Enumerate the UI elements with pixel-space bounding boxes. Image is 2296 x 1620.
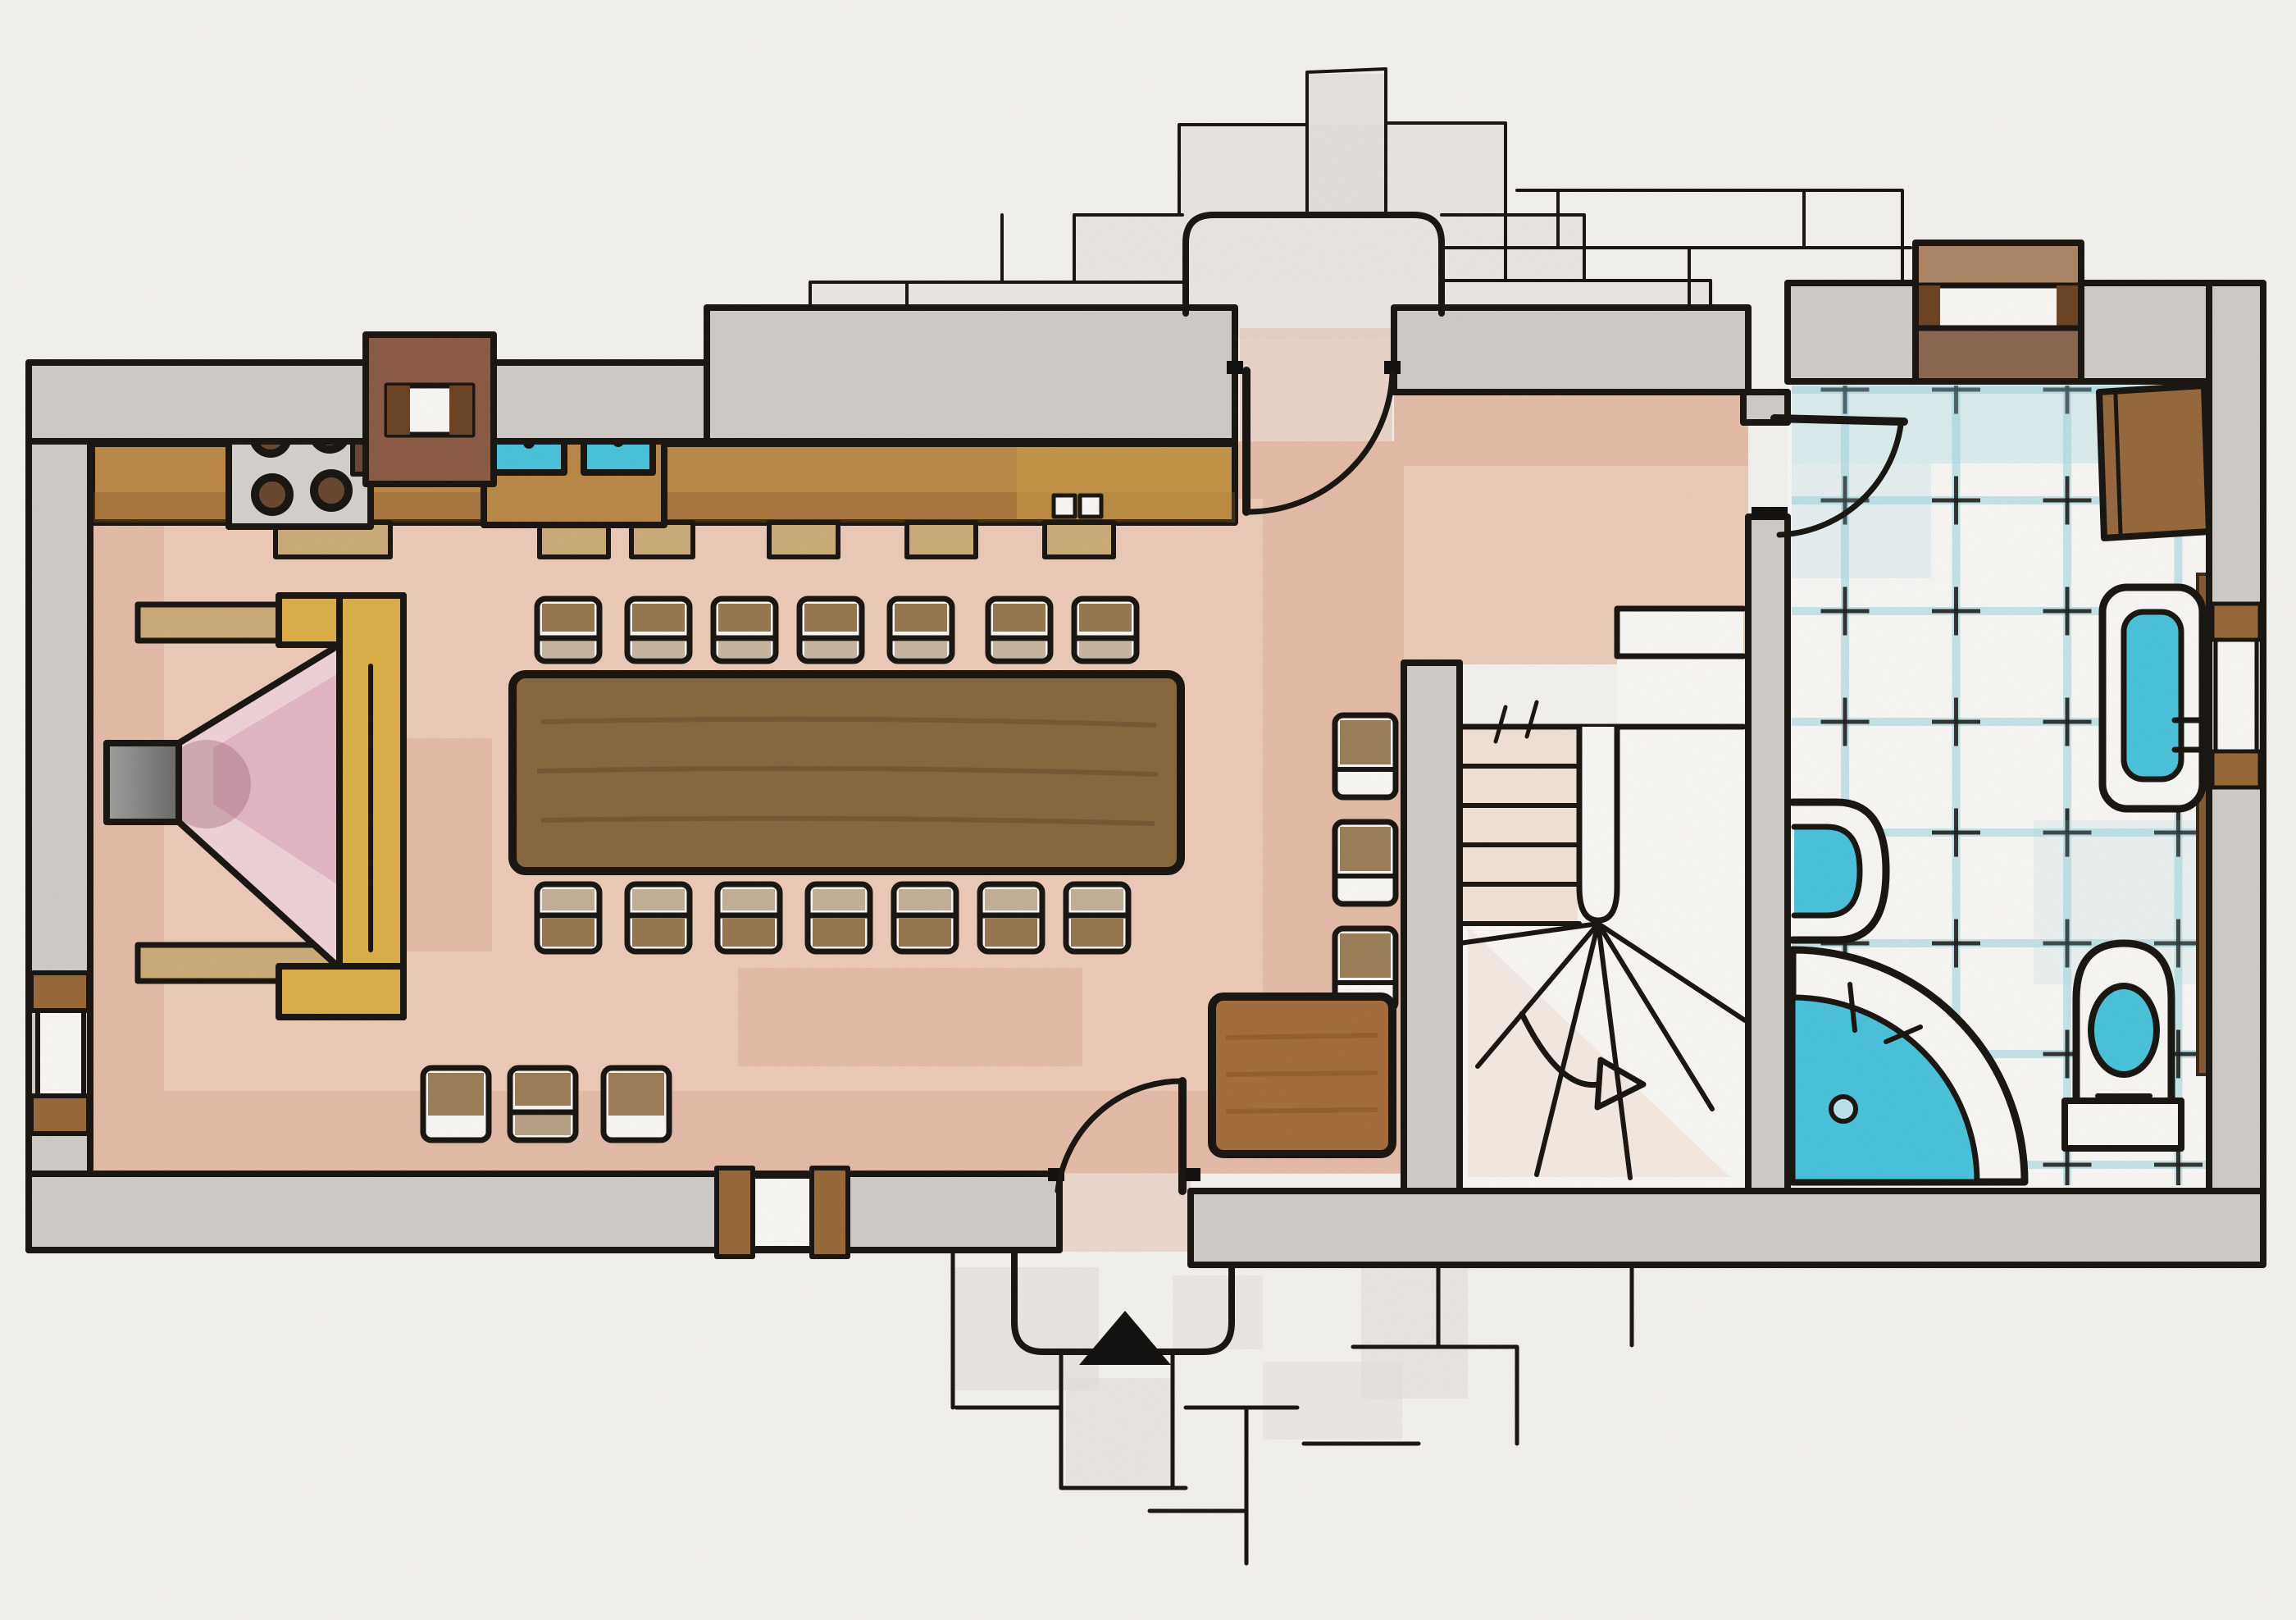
stool [604, 1068, 669, 1140]
dining-chair [808, 884, 870, 951]
dining-chair [890, 599, 952, 661]
dining-chair [717, 884, 780, 951]
dining-chair [980, 884, 1042, 951]
wall-hall-bathroom [1748, 517, 1788, 1191]
dining-chair [537, 599, 599, 661]
bathroom-door-leaf [1774, 418, 1904, 422]
floor-plan: Hand-drawn ground floor plan [0, 0, 2296, 1620]
toilet [2065, 943, 2181, 1148]
dining-chair [894, 884, 956, 951]
chair-row-south [537, 884, 1128, 951]
shower-drain [1831, 1097, 1856, 1121]
window-east [2212, 604, 2260, 787]
dining-chair [799, 599, 862, 661]
toilet-bowl [2091, 986, 2157, 1075]
wall-stair-west [1404, 663, 1460, 1191]
burner [314, 473, 348, 508]
dining-chair [537, 884, 599, 951]
cabinet-handle [1080, 495, 1101, 517]
dining-chair [627, 884, 690, 951]
wall-north-c [1394, 308, 1748, 392]
south-wall-stools [423, 1068, 669, 1140]
dining-chair [988, 599, 1050, 661]
dining-chair [713, 599, 776, 661]
toilet-cistern [2065, 1101, 2181, 1148]
stool [423, 1068, 489, 1140]
wall-hung-basin [1793, 802, 1886, 940]
window-south [717, 1168, 848, 1257]
wall-north-b [707, 308, 1235, 441]
stair-spine-wall [1579, 727, 1617, 920]
dining-chair [627, 599, 690, 661]
burner [255, 477, 289, 512]
wall-south-b [1191, 1191, 2263, 1265]
fireplace-flue [107, 743, 179, 822]
dining-chair [1066, 884, 1128, 951]
window-west [31, 973, 89, 1134]
hall-stools [1335, 715, 1396, 1011]
stool [510, 1068, 576, 1140]
chair-row-north [537, 599, 1137, 661]
washbasin-bowl [2124, 612, 2181, 779]
chimney [366, 335, 494, 484]
floor-plan-drawing: Hand-drawn ground floor plan [0, 0, 2296, 1620]
stair-stub-wall [1617, 609, 1743, 656]
back-door-threshold [1240, 328, 1392, 441]
stool [1335, 822, 1396, 904]
stool [1335, 715, 1396, 797]
window-bathroom-north [1916, 243, 2081, 381]
front-door-threshold [1059, 1174, 1191, 1252]
dining-chair [1074, 599, 1137, 661]
wall-south-a [29, 1174, 1059, 1250]
cabinet-handle [1054, 495, 1075, 517]
wall-north-e [2081, 283, 2211, 381]
wall-north-d [1788, 283, 1916, 381]
